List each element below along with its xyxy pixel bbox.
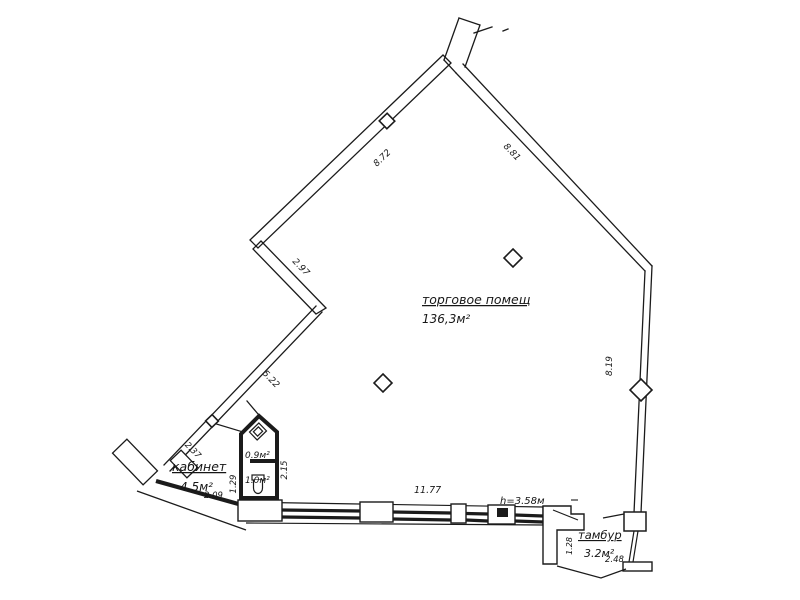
wall-stub-west [113, 439, 158, 485]
small-mark [503, 29, 508, 31]
dim-zigzag-lower: 5.22 [260, 369, 281, 391]
door-line-wc [247, 401, 258, 414]
column-diamond [374, 374, 392, 392]
dim-top-right-wall: 8.81 [501, 142, 522, 163]
wall-stub-top [444, 18, 508, 67]
dim-bottom-wall: 11.77 [414, 485, 441, 496]
wall-2-97 [253, 241, 326, 314]
dim-office-width: 2.09 [204, 491, 223, 501]
wall-8-81 [456, 64, 652, 271]
vestibule-name: тамбур [578, 528, 622, 542]
column-diamond-right-wall [630, 379, 652, 401]
column-block [238, 500, 282, 521]
vestibule-right-wall [629, 531, 638, 562]
column-square-top-wall [379, 113, 395, 129]
dim-vestibule-width: 2.48 [605, 555, 625, 565]
dim-ceiling-height: h=3.58м [500, 496, 545, 507]
cut-tick [474, 27, 492, 33]
column-diamond [504, 249, 522, 267]
dim-wc-side: 2.15 [280, 461, 290, 480]
office-name: кабинет [172, 459, 227, 474]
column-square-left-wall [206, 415, 219, 428]
main-hall-name: торговое помещ [422, 292, 531, 307]
dim-vestibule-depth: 1.28 [565, 537, 574, 555]
column-block [451, 504, 466, 523]
vestibule-structure [543, 506, 652, 578]
walls-thin [164, 18, 652, 513]
column-block [360, 502, 393, 522]
dim-office-inner: 1.29 [229, 475, 239, 494]
vestibule-bottom-opening [557, 566, 626, 578]
wc-small-area: 0.9м² [245, 451, 270, 461]
wc-area: 1.0м² [245, 476, 270, 486]
dim-top-left-wall: 8.72 [372, 148, 394, 169]
wall-8-72 [250, 55, 456, 248]
floor-plan-drawing: торговое помещ 136,3м² кабинет 4.5м² там… [0, 0, 800, 600]
dim-zigzag-upper: 2.97 [290, 257, 311, 279]
main-hall-area: 136,3м² [422, 312, 470, 326]
vestibule-column [624, 512, 646, 531]
dim-right-wall: 8.19 [605, 356, 615, 376]
door-line-office [213, 423, 243, 432]
floor-plan-page: торговое помещ 136,3м² кабинет 4.5м² там… [0, 0, 800, 600]
door-pivot-block [497, 508, 508, 517]
vestibule-footing [623, 562, 652, 571]
